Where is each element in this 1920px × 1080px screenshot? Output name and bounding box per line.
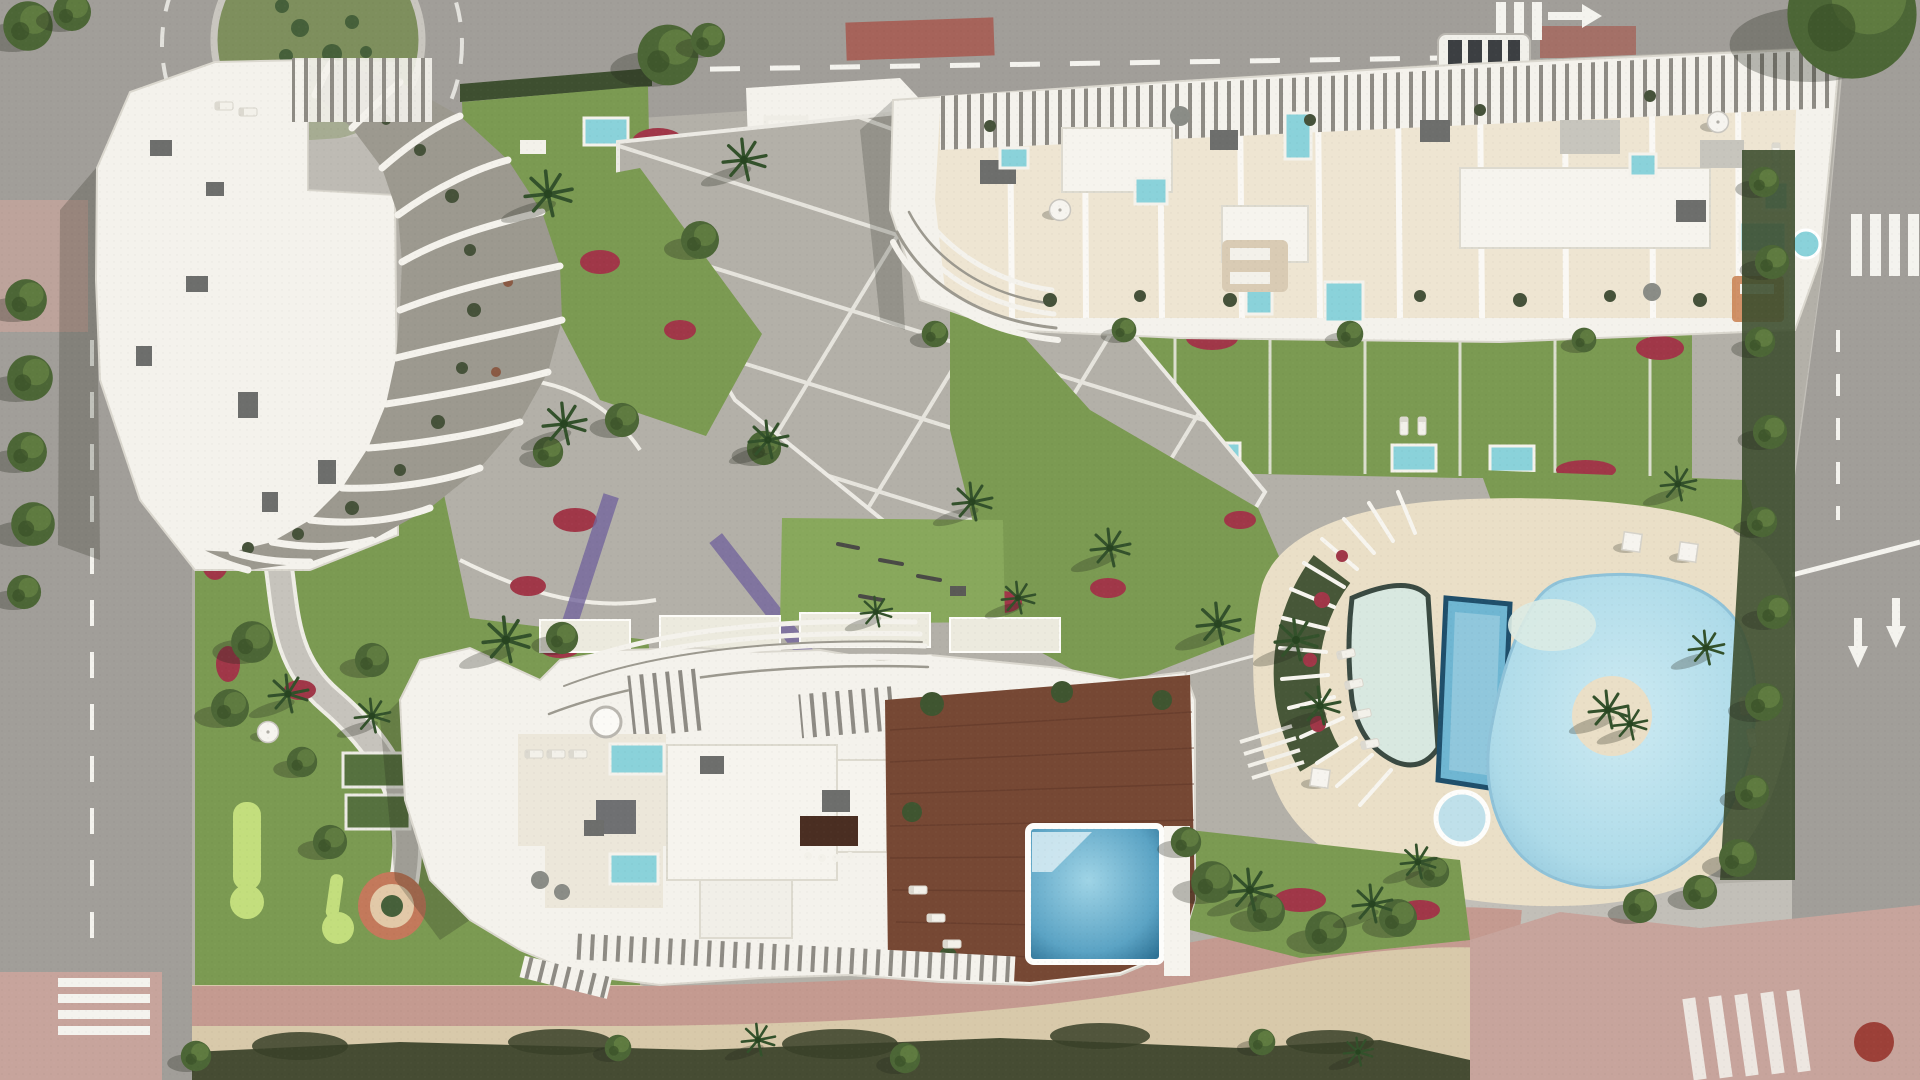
aerial-render-image (0, 0, 1920, 1080)
grain-overlay (0, 0, 1920, 1080)
scene-canvas (0, 0, 1920, 1080)
